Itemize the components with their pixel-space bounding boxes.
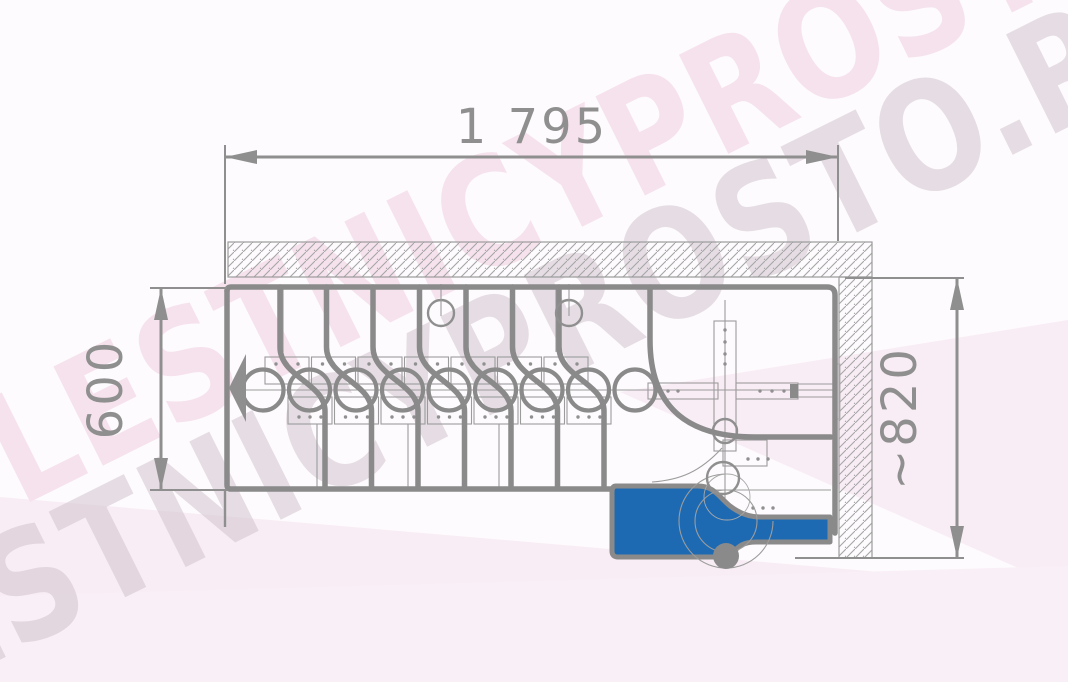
- drawing-canvas: LESTNICYPROSTO.RU LESTNICYPROSTO.RU: [0, 0, 1068, 682]
- dimension-depth-label: 600: [78, 339, 134, 440]
- wall-right-hatch: [839, 277, 872, 558]
- wall-right: [834, 277, 872, 558]
- center-pole: [713, 543, 739, 569]
- dimension-width-label: 1 795: [456, 99, 608, 155]
- wall-top-hatch: [228, 242, 872, 277]
- wall-top: [228, 242, 872, 277]
- dimension-clearance-label: ~820: [872, 346, 928, 490]
- staircase-plan-svg: LESTNICYPROSTO.RU LESTNICYPROSTO.RU: [0, 0, 1068, 682]
- rail-end-cap: [790, 384, 798, 398]
